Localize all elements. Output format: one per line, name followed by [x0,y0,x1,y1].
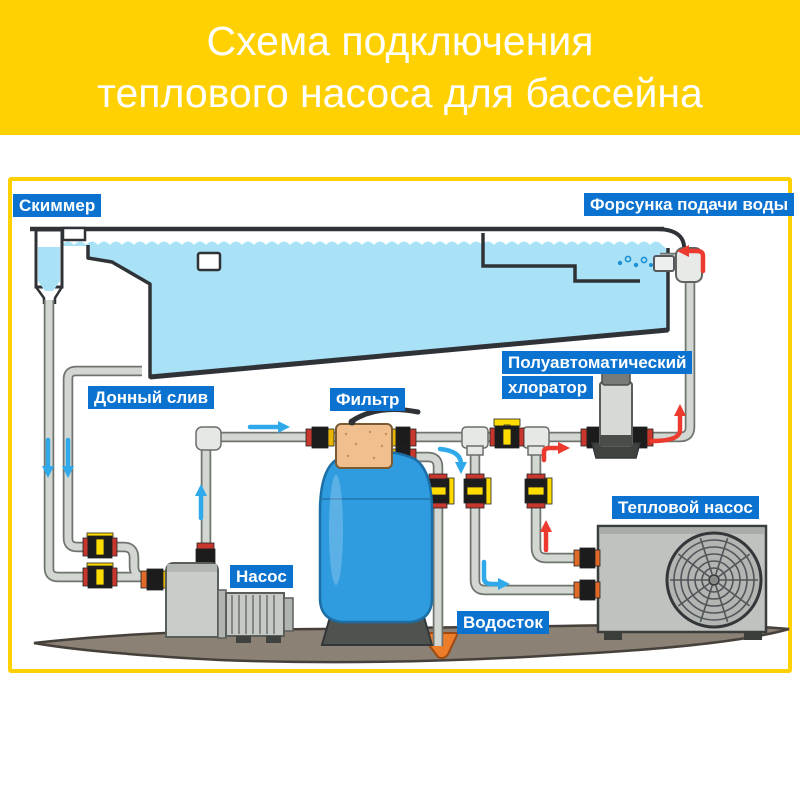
union-heatpump-out [574,548,600,568]
label-skimmer: Скиммер [13,194,101,217]
arrow-curve-right-heatpump-icon [484,562,510,590]
tee-fitting-icon [523,427,549,448]
multiport-valve [336,424,392,468]
label-chlorinator: Полуавтоматический хлоратор [502,351,692,401]
label-chlorinator-line1: Полуавтоматический [502,351,692,374]
pipe-pump-to-filter [206,437,310,566]
motor-flange [218,590,226,638]
label-drain: Водосток [457,611,549,634]
label-pump: Насос [230,565,293,588]
label-chlorinator-line2: хлоратор [502,376,593,399]
valve-bypass [490,419,524,448]
valve-drain-line [83,563,117,588]
union-heatpump-in [574,580,600,600]
arrow-curve-down-branch-icon [440,449,467,474]
label-heat-pump: Тепловой насос [612,496,759,519]
union-pump-inlet [141,569,169,590]
multiport-handle-icon [352,409,418,421]
valve-heatpump-out [525,474,552,508]
skimmer-throat-tab [63,228,85,240]
valve-heatpump-in [464,474,491,508]
skimmer-body [36,230,62,304]
label-filter: Фильтр [330,388,405,411]
valve-skimmer-line [83,533,117,558]
label-inlet-nozzle: Форсунка подачи воды [584,193,794,216]
elbow-fitting-icon [196,427,221,450]
arrow-right-to-filter-icon [250,421,290,433]
label-bottom-drain: Донный слив [88,386,214,409]
tee-fitting-icon [462,427,488,448]
pool-wall-step-detail [198,253,220,270]
inlet-nozzle-icon [654,256,674,271]
heat-pump-unit [574,526,766,640]
page: Схема подключения теплового насоса для б… [0,0,800,801]
union-filter-left [306,427,334,448]
arrow-red-up-heatpump-icon [540,520,552,550]
union-filter-top-port [390,427,416,448]
motor [226,593,284,636]
